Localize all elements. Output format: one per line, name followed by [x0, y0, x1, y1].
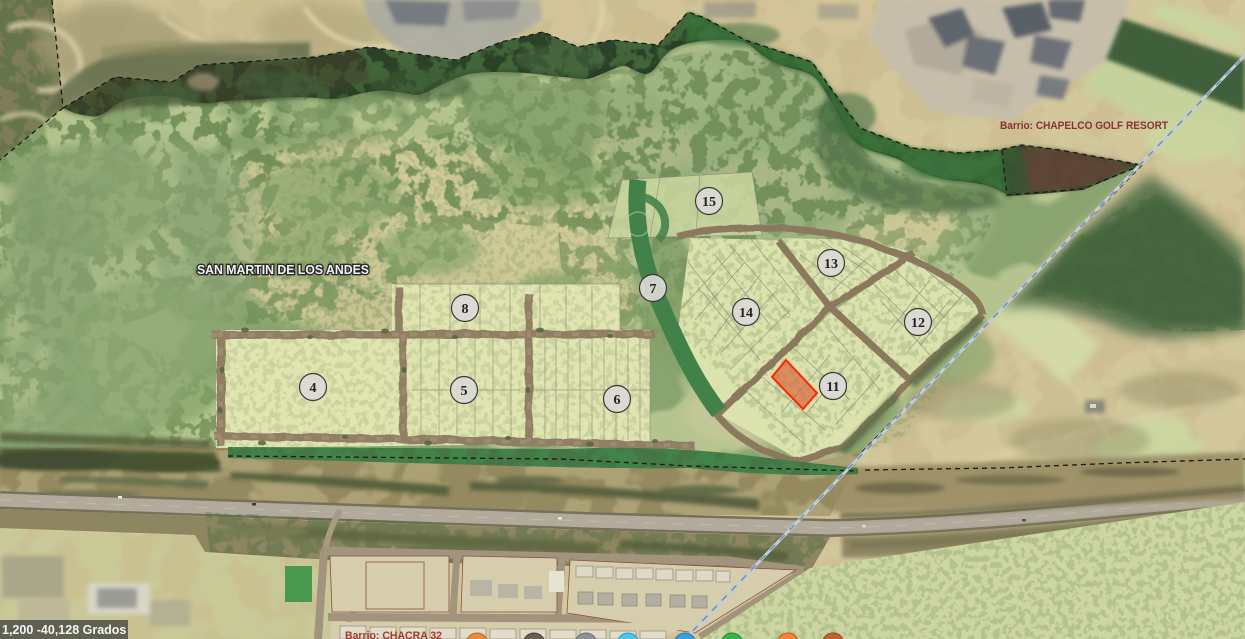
svg-text:15: 15 [702, 195, 716, 210]
svg-text:7: 7 [650, 282, 657, 297]
svg-text:Barrio: CHACRA 32: Barrio: CHACRA 32 [345, 630, 442, 639]
svg-text:8: 8 [462, 302, 469, 317]
svg-text:6: 6 [614, 393, 621, 408]
svg-text:13: 13 [824, 257, 838, 272]
svg-text:11: 11 [826, 380, 839, 395]
svg-text:14: 14 [739, 306, 753, 321]
svg-text:1,200 -40,128 Grados: 1,200 -40,128 Grados [2, 623, 126, 637]
svg-text:12: 12 [911, 316, 925, 331]
svg-text:5: 5 [461, 384, 468, 399]
svg-text:SAN MARTIN DE LOS ANDES: SAN MARTIN DE LOS ANDES [197, 263, 369, 277]
svg-text:Barrio: CHAPELCO GOLF RESORT: Barrio: CHAPELCO GOLF RESORT [1000, 120, 1168, 132]
svg-text:4: 4 [310, 381, 317, 396]
